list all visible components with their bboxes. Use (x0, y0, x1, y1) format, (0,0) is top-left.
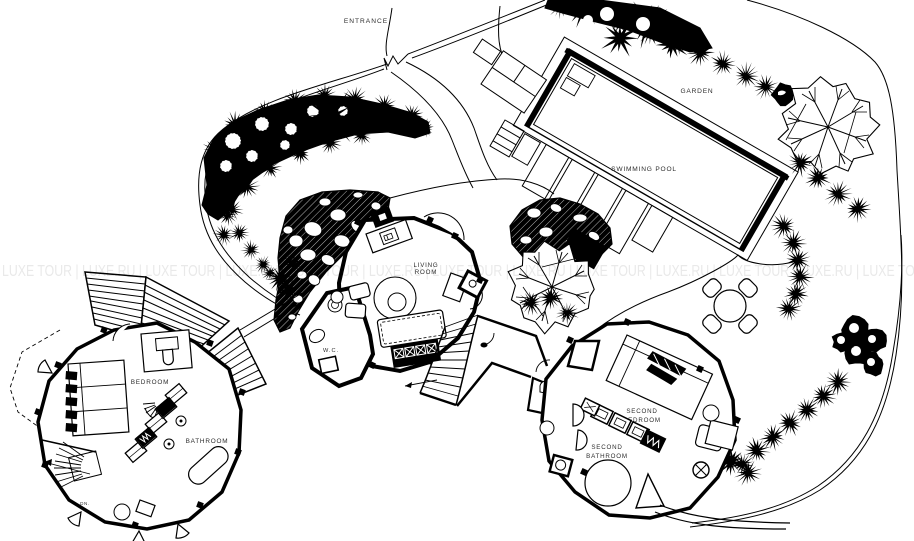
svg-text:DN.: DN. (80, 501, 90, 506)
svg-text:GARDEN: GARDEN (680, 88, 713, 95)
svg-text:LUXE TOUR | LUXE.RU | LUXE TOU: LUXE TOUR | LUXE.RU | LUXE TOUR | LUXE.R… (2, 263, 914, 280)
svg-text:SWIMMING POOL: SWIMMING POOL (611, 166, 677, 173)
svg-text:BEDROOM: BEDROOM (131, 379, 170, 386)
svg-text:SECOND: SECOND (626, 408, 657, 415)
svg-text:W.C.: W.C. (323, 348, 339, 354)
svg-text:ENTRANCE: ENTRANCE (344, 18, 388, 25)
svg-text:BATHROOM: BATHROOM (586, 453, 628, 460)
svg-text:SECOND: SECOND (591, 444, 622, 451)
svg-text:BATHROOM: BATHROOM (186, 438, 229, 445)
